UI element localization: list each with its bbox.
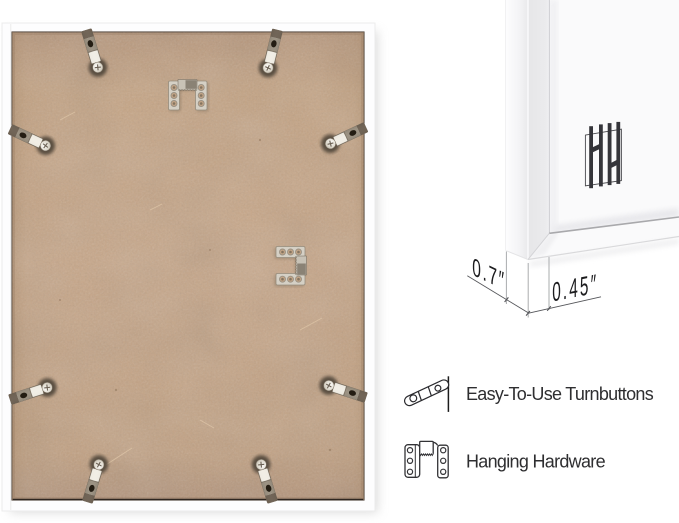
svg-text:Hanging Hardware: Hanging Hardware bbox=[466, 451, 606, 471]
svg-text:Easy-To-Use Turnbuttons: Easy-To-Use Turnbuttons bbox=[466, 384, 654, 404]
